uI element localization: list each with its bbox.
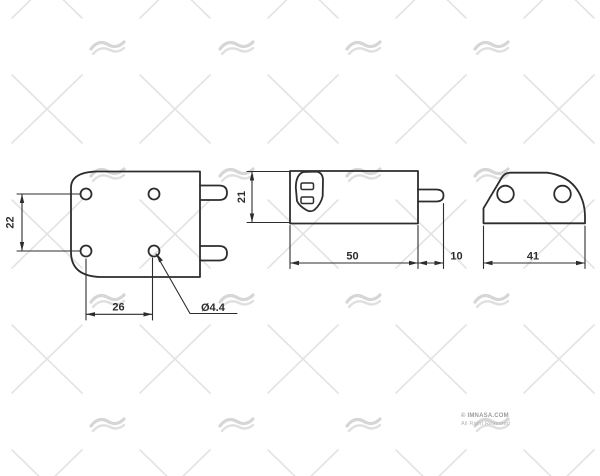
end-view-hole — [554, 186, 571, 203]
watermark-cross — [268, 325, 338, 393]
watermark-cross — [12, 450, 82, 476]
watermark-cross — [12, 0, 82, 18]
imnasa-wave-icon — [91, 42, 124, 54]
side-view — [290, 171, 444, 224]
top-view-tab — [200, 246, 227, 261]
technical-drawing: 22 26 Ø4.4 — [0, 0, 600, 476]
dim-label-21: 21 — [236, 191, 248, 203]
imnasa-wave-icon — [220, 419, 253, 431]
watermark-cross — [396, 75, 466, 143]
side-view-slot — [301, 183, 314, 190]
imnasa-wave-icon — [220, 295, 253, 307]
top-view-hole — [81, 189, 92, 200]
dim-label-50: 50 — [346, 251, 358, 263]
watermark-cross — [524, 325, 594, 393]
watermark-cross — [12, 325, 82, 393]
imnasa-wave-icon — [475, 295, 508, 307]
imnasa-wave-icon — [347, 419, 380, 431]
imnasa-wave-icon — [475, 42, 508, 54]
end-view-hole — [497, 186, 514, 203]
watermark-cross — [524, 0, 594, 18]
side-view-slot — [301, 197, 314, 204]
watermark-cross — [396, 0, 466, 18]
rights-line: All Right Reserved — [461, 420, 510, 428]
watermark-cross — [524, 450, 594, 476]
watermark-cross — [140, 75, 210, 143]
imnasa-wave-icon — [220, 169, 253, 181]
top-view-hole — [81, 246, 92, 257]
top-view-tab — [200, 186, 227, 201]
dim-label-26: 26 — [112, 302, 124, 314]
watermark-cross — [268, 450, 338, 476]
copyright-notice: © IMNASA.COM All Right Reserved — [461, 412, 510, 428]
top-view-body-outline — [71, 172, 200, 278]
top-view-hole — [149, 189, 160, 200]
drawing-canvas: 22 26 Ø4.4 — [0, 0, 600, 476]
watermark-cross — [268, 75, 338, 143]
top-view-dim-arrows — [20, 194, 163, 317]
side-view-face-plate — [296, 172, 323, 212]
watermark-cross — [396, 450, 466, 476]
end-view — [484, 173, 586, 224]
dim-label-10: 10 — [450, 251, 462, 263]
watermark-layer — [12, 0, 594, 476]
watermark-cross — [140, 325, 210, 393]
dim-label-22: 22 — [5, 216, 17, 228]
imnasa-wave-icon — [347, 295, 380, 307]
watermark-cross — [140, 450, 210, 476]
side-view-dimensions — [247, 172, 444, 269]
watermark-cross — [12, 75, 82, 143]
imnasa-wave-icon — [91, 419, 124, 431]
copyright-line: © IMNASA.COM — [461, 412, 510, 420]
imnasa-wave-icon — [347, 42, 380, 54]
watermark-cross — [396, 325, 466, 393]
dim-label-41: 41 — [527, 251, 539, 263]
side-view-pin — [418, 190, 444, 202]
imnasa-wave-icon — [220, 42, 253, 54]
top-view — [71, 172, 227, 278]
watermark-cross — [268, 200, 338, 268]
watermark-cross — [524, 75, 594, 143]
watermark-cross — [268, 0, 338, 18]
dim-label-hole-diameter: Ø4.4 — [201, 302, 226, 314]
watermark-cross — [140, 0, 210, 18]
